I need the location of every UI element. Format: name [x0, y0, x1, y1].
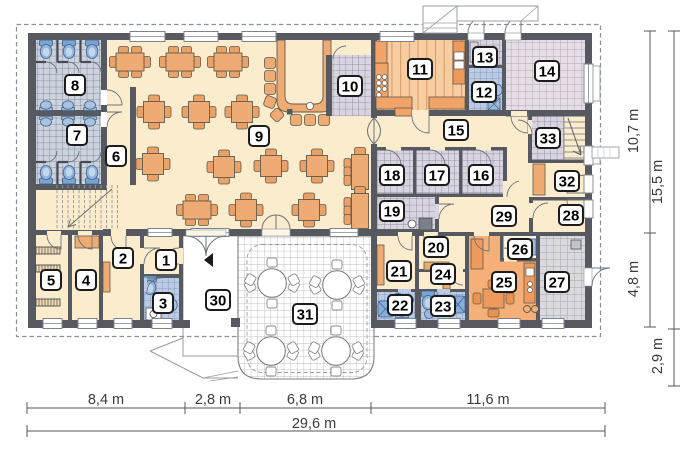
svg-text:11,6 m: 11,6 m: [466, 392, 509, 408]
svg-text:9: 9: [255, 129, 263, 146]
svg-text:20: 20: [428, 240, 445, 257]
svg-text:23: 23: [435, 299, 452, 316]
svg-text:7: 7: [73, 128, 81, 145]
svg-text:4,8 m: 4,8 m: [626, 261, 642, 297]
svg-text:24: 24: [435, 267, 452, 284]
svg-text:27: 27: [549, 275, 566, 292]
svg-text:11: 11: [412, 62, 428, 79]
svg-text:26: 26: [512, 242, 529, 259]
svg-text:8,4 m: 8,4 m: [88, 392, 124, 408]
svg-text:31: 31: [297, 307, 314, 324]
svg-text:16: 16: [473, 168, 490, 185]
svg-text:32: 32: [559, 174, 576, 191]
svg-text:13: 13: [477, 50, 494, 67]
svg-text:10: 10: [342, 79, 359, 96]
svg-text:10,7 m: 10,7 m: [626, 109, 642, 153]
svg-text:19: 19: [384, 204, 401, 221]
svg-text:28: 28: [563, 208, 580, 225]
svg-text:6: 6: [112, 149, 120, 166]
svg-text:1: 1: [162, 253, 170, 270]
svg-text:17: 17: [429, 168, 446, 185]
svg-text:14: 14: [539, 64, 556, 81]
svg-text:25: 25: [496, 275, 513, 292]
svg-text:6,8 m: 6,8 m: [287, 392, 323, 408]
svg-text:5: 5: [47, 273, 55, 290]
svg-text:33: 33: [540, 131, 557, 148]
svg-text:29,6 m: 29,6 m: [292, 416, 336, 432]
svg-text:4: 4: [82, 273, 91, 290]
svg-text:21: 21: [391, 264, 408, 281]
svg-text:2: 2: [119, 251, 127, 268]
svg-text:2,9 m: 2,9 m: [650, 338, 666, 374]
svg-text:18: 18: [384, 168, 401, 185]
svg-text:30: 30: [210, 293, 227, 310]
svg-text:15,5 m: 15,5 m: [650, 160, 666, 204]
svg-text:15: 15: [448, 123, 465, 140]
svg-text:2,8 m: 2,8 m: [195, 392, 231, 408]
svg-text:22: 22: [392, 298, 409, 315]
svg-text:29: 29: [496, 209, 513, 226]
svg-text:3: 3: [159, 296, 167, 313]
svg-text:8: 8: [71, 78, 79, 95]
svg-text:12: 12: [476, 85, 493, 102]
